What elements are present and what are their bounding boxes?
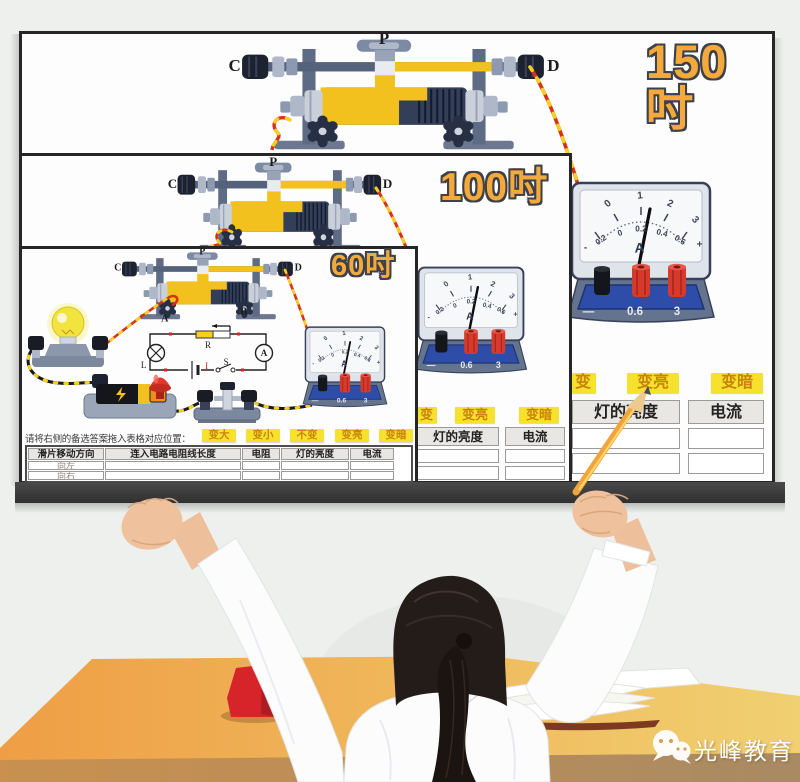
wall-shadow (313, 595, 623, 782)
light-bulb (24, 300, 112, 372)
screen-right-shadow (775, 38, 783, 486)
watermark-brand: 光峰教育 (694, 732, 794, 766)
size-label-100: 100吋 (440, 168, 548, 207)
schematic-current-label: I (205, 361, 208, 371)
ammeter-base-label: — (583, 306, 595, 318)
answer-table-100: 灯的亮度 电流 (417, 427, 565, 480)
rheostat-terminal-b-label: B (240, 307, 247, 318)
table-header-direction: 滑片移动方向 (28, 448, 104, 460)
ammeter-minus-sign: - (428, 312, 431, 321)
answer-chip-unchanged[interactable]: 不变 (290, 429, 324, 442)
screen-60: C P D A B 60吋 (19, 246, 418, 484)
answer-cell[interactable] (688, 453, 764, 474)
red-bookend (221, 665, 289, 723)
right-sleeve (526, 548, 658, 723)
answer-chip-cropped[interactable]: 变 (570, 373, 596, 393)
answer-chip-brighter[interactable]: 变亮 (455, 407, 495, 423)
ammeter-illustration: 0 1 2 3 0.2 0 0.2 0.4 0.6 - + A — 0.6 3 (302, 326, 388, 409)
answer-chip-brighter[interactable]: 变亮 (335, 429, 369, 442)
ammeter-plus-sign: + (377, 360, 380, 366)
screen-left-shadow (10, 34, 19, 486)
ammeter-plus-sign: + (513, 310, 517, 319)
ammeter-base-label: 3 (674, 306, 680, 318)
ammeter-base-label: 3 (496, 360, 501, 370)
rheostat-slider-label: P (199, 246, 205, 257)
table-header-brightness: 灯的亮度 (281, 448, 349, 460)
table-header-wire-length: 连入电路电阻线长度 (105, 448, 241, 460)
table-header-resistance: 电阻 (242, 448, 280, 460)
table-header-current: 电流 (350, 448, 394, 460)
watermark: 光峰教育 (648, 728, 798, 770)
answer-cell[interactable] (572, 428, 680, 449)
answer-cell[interactable] (572, 453, 680, 474)
schematic-ammeter-label: A (261, 348, 268, 358)
ammeter-scale-label: 1 (467, 272, 472, 281)
ammeter-base-label: — (427, 360, 436, 370)
table-header-brightness: 灯的亮度 (417, 427, 499, 446)
ammeter-scale-label: 0.2 (635, 224, 646, 233)
answer-table-150: 灯的亮度 电流 (572, 400, 764, 474)
ponytail (432, 646, 476, 782)
answer-cell[interactable] (505, 466, 565, 480)
size-label-60: 60吋 (331, 252, 395, 281)
answer-table-60: 滑片移动方向 连入电路电阻线长度 电阻 灯的亮度 电流 向左 向右 (25, 445, 413, 483)
red-button (146, 370, 174, 400)
hair (393, 576, 507, 706)
answer-cell[interactable] (350, 471, 394, 480)
answer-cell[interactable] (350, 461, 394, 470)
size-label-150: 150吋 (646, 38, 772, 132)
answer-chip-smaller[interactable]: 变小 (246, 429, 280, 442)
rheostat-terminal-d-label: D (383, 176, 392, 192)
ammeter-illustration: 0 1 2 3 0.2 0 0.2 0.4 0.6 - + A — 0.6 3 (414, 266, 528, 376)
answer-cell[interactable] (281, 471, 349, 480)
answer-cell[interactable] (105, 471, 241, 480)
ammeter-base-label: 0.6 (627, 306, 643, 318)
answer-chip-brighter[interactable]: 变亮 (627, 373, 679, 393)
rheostat-terminal-d-label: D (295, 263, 302, 274)
right-forearm (612, 518, 656, 572)
answer-cell[interactable] (105, 461, 241, 470)
answer-chip-dimmer[interactable]: 变暗 (711, 373, 763, 393)
left-forearm (170, 512, 220, 570)
shirt-torso (344, 686, 550, 782)
schematic-lamp-label: L (141, 360, 147, 370)
rheostat-terminal-c-label: C (228, 56, 240, 76)
answer-cell[interactable] (417, 449, 499, 463)
ammeter-plus-sign: + (697, 239, 703, 250)
rheostat-slider-label: P (269, 154, 277, 170)
ammeter-scale-label: 1 (342, 331, 346, 337)
screen-bottom-frame (15, 482, 785, 503)
table-row-left: 向左 (28, 461, 104, 470)
rheostat-terminal-c-label: C (114, 263, 121, 274)
schematic-switch-label: S (224, 357, 229, 367)
answer-chip-bigger[interactable]: 变大 (202, 429, 236, 442)
drag-instruction: 请将右侧的备选答案拖入表格对应位置： (25, 431, 191, 445)
answer-chip-dimmer[interactable]: 变暗 (519, 407, 559, 423)
open-book (452, 668, 700, 730)
table-header-brightness: 灯的亮度 (572, 400, 680, 424)
answer-chip-cropped[interactable]: 变 (416, 407, 437, 423)
ammeter-scale-label: 0.2 (467, 299, 476, 306)
scene-canvas: C P D 150吋 0 1 2 3 0.2 0 0.2 0.4 0.6 - +… (0, 0, 800, 782)
ammeter-base-label: 0.6 (337, 397, 346, 404)
rheostat-illustration: C P D (228, 34, 560, 152)
answer-cell[interactable] (688, 428, 764, 449)
rheostat-illustration: C P D (168, 158, 392, 254)
ammeter-base-label: 3 (364, 397, 368, 404)
rheostat-illustration: C P D A B (114, 249, 302, 321)
hair-tie (456, 633, 472, 649)
ammeter-scale-label: 0.2 (342, 351, 349, 356)
schematic-rheostat-label: R (205, 340, 211, 350)
knife-switch (192, 382, 262, 424)
right-cuff (602, 540, 650, 566)
rheostat-terminal-a-label: A (161, 313, 168, 324)
table-header-current: 电流 (688, 400, 764, 424)
rheostat-terminal-d-label: D (547, 56, 559, 76)
ammeter-illustration: 0 1 2 3 0.2 0 0.2 0.4 0.6 - + A — 0.6 3 (566, 181, 716, 326)
rheostat-terminal-c-label: C (168, 176, 177, 192)
ammeter-unit-label: A (466, 311, 473, 322)
ammeter-unit-label: A (635, 240, 645, 255)
ammeter-scale-label: 0 (331, 353, 335, 359)
ammeter-minus-sign: - (584, 242, 587, 253)
answer-chip-dimmer[interactable]: 变暗 (379, 429, 413, 442)
screen-frame-shadow (15, 503, 785, 513)
answer-cell[interactable] (281, 461, 349, 470)
answer-cell[interactable] (505, 449, 565, 463)
answer-cell[interactable] (242, 461, 280, 470)
left-sleeve (198, 538, 344, 782)
table-row-right: 向右 (28, 471, 104, 480)
ammeter-unit-label: A (341, 360, 347, 369)
ammeter-minus-sign: - (312, 361, 314, 367)
ammeter-base-label: 0.6 (460, 360, 472, 370)
answer-cell[interactable] (242, 471, 280, 480)
answer-cell[interactable] (417, 466, 499, 480)
ammeter-scale-label: 0.4 (482, 301, 492, 310)
ammeter-scale-label: 1 (636, 190, 643, 201)
wechat-icon (648, 729, 694, 769)
ammeter-base-label: — (312, 397, 319, 404)
rheostat-slider-label: P (379, 29, 389, 49)
table-header-current: 电流 (505, 427, 565, 446)
